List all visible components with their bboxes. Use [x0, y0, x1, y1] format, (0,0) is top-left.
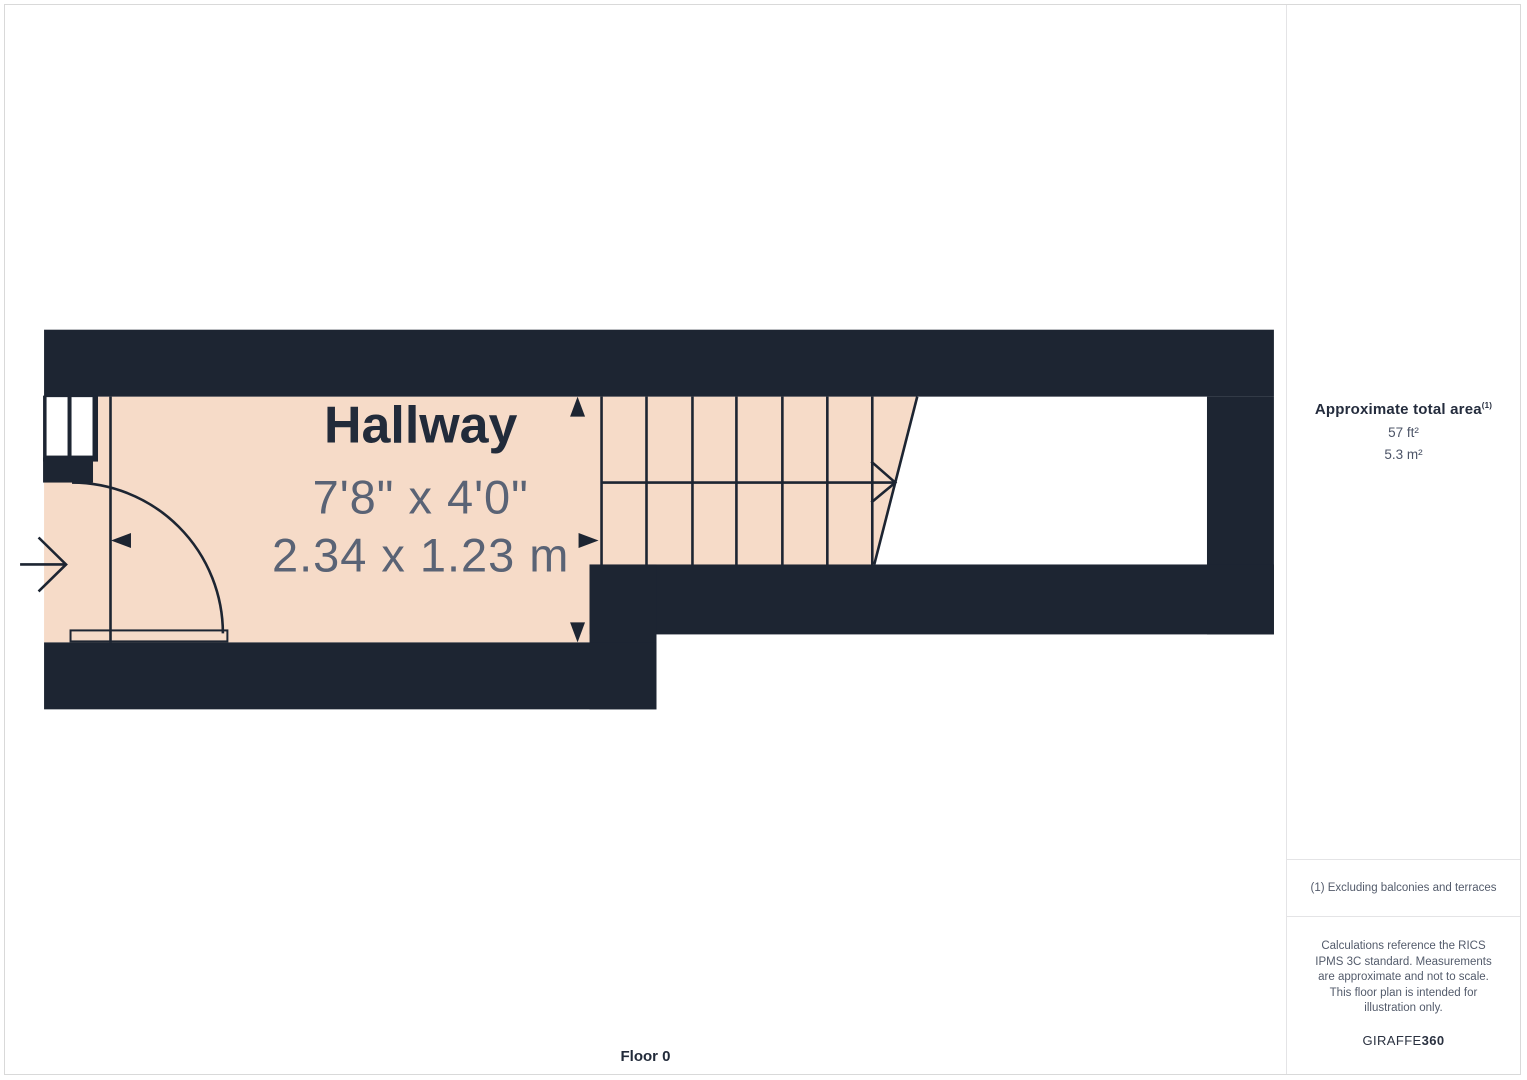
- area-title-superscript: (1): [1482, 401, 1492, 410]
- area-footnote: (1) Excluding balconies and terraces: [1287, 859, 1520, 917]
- info-sidebar: Approximate total area(1) 57 ft² 5.3 m² …: [1286, 5, 1520, 1074]
- window-sill: [43, 458, 93, 483]
- room-dimensions-imperial: 7'8" x 4'0": [313, 471, 529, 524]
- disclaimer-section: Calculations reference the RICS IPMS 3C …: [1287, 917, 1520, 1074]
- disclaimer-text: Calculations reference the RICS IPMS 3C …: [1309, 939, 1499, 1017]
- floor-plan-page: { "floor_plan": { "room": { "name": "Hal…: [0, 0, 1527, 1080]
- floor-label: Floor 0: [5, 1048, 1286, 1065]
- window-icon: [43, 396, 98, 483]
- area-title: Approximate total area(1): [1315, 401, 1492, 418]
- area-value-imperial: 57 ft²: [1388, 425, 1419, 440]
- room-dimensions-metric: 2.34 x 1.23 m: [272, 528, 569, 581]
- floor-plan: Hallway 7'8" x 4'0" 2.34 x 1.23 m: [5, 5, 1286, 1074]
- page-frame: Hallway 7'8" x 4'0" 2.34 x 1.23 m Floor …: [4, 4, 1521, 1075]
- area-summary: Approximate total area(1) 57 ft² 5.3 m²: [1287, 5, 1520, 859]
- window-pane: [72, 397, 93, 455]
- room-name-label: Hallway: [324, 397, 518, 455]
- wall-top: [44, 330, 1274, 397]
- floor-plan-canvas: Hallway 7'8" x 4'0" 2.34 x 1.23 m Floor …: [5, 5, 1286, 1074]
- window-pane: [47, 397, 68, 455]
- wall-bottom-left: [44, 642, 656, 709]
- wall-bottom-right: [590, 564, 1274, 634]
- logo-suffix: 360: [1422, 1033, 1445, 1048]
- logo-prefix: GIRAFFE: [1362, 1033, 1421, 1048]
- area-title-text: Approximate total area: [1315, 401, 1482, 418]
- giraffe360-logo: GIRAFFE360: [1303, 1033, 1504, 1048]
- area-value-metric: 5.3 m²: [1384, 447, 1422, 462]
